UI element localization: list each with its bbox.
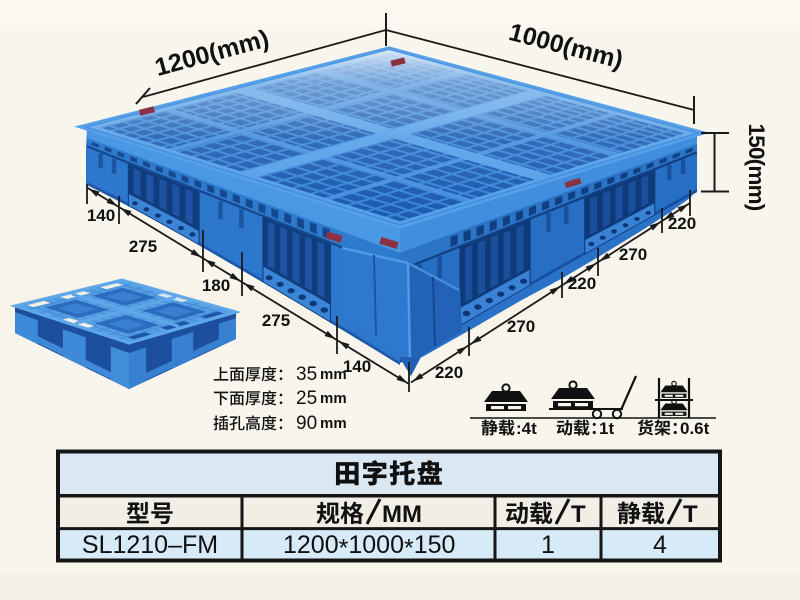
svg-text:150(mm): 150(mm) — [744, 124, 769, 211]
svg-text:220: 220 — [568, 274, 596, 293]
svg-text:270: 270 — [619, 245, 647, 264]
svg-text:275: 275 — [262, 311, 290, 330]
svg-text:T: T — [571, 501, 586, 528]
svg-text:0.6t: 0.6t — [680, 419, 710, 438]
svg-text:220: 220 — [435, 363, 463, 382]
svg-text:180: 180 — [202, 276, 230, 295]
svg-text:90: 90 — [296, 413, 317, 434]
svg-text:1t: 1t — [599, 419, 614, 438]
svg-text:SL1210–FM: SL1210–FM — [82, 531, 218, 559]
svg-text:T: T — [683, 501, 698, 528]
svg-text:275: 275 — [129, 237, 157, 256]
svg-text:140: 140 — [343, 357, 371, 376]
svg-text:mm: mm — [320, 366, 347, 383]
svg-text:270: 270 — [507, 317, 535, 336]
svg-text:1: 1 — [541, 531, 555, 559]
svg-text::4t: :4t — [516, 419, 537, 438]
svg-text:mm: mm — [320, 415, 347, 432]
svg-text:1200*1000*150: 1200*1000*150 — [283, 531, 455, 563]
svg-text:MM: MM — [382, 501, 422, 528]
svg-text:220: 220 — [668, 214, 696, 233]
svg-text:25: 25 — [296, 388, 317, 409]
svg-text:35: 35 — [296, 364, 317, 385]
svg-text:mm: mm — [320, 390, 347, 407]
svg-text:4: 4 — [653, 531, 667, 559]
svg-text:140: 140 — [87, 206, 115, 225]
